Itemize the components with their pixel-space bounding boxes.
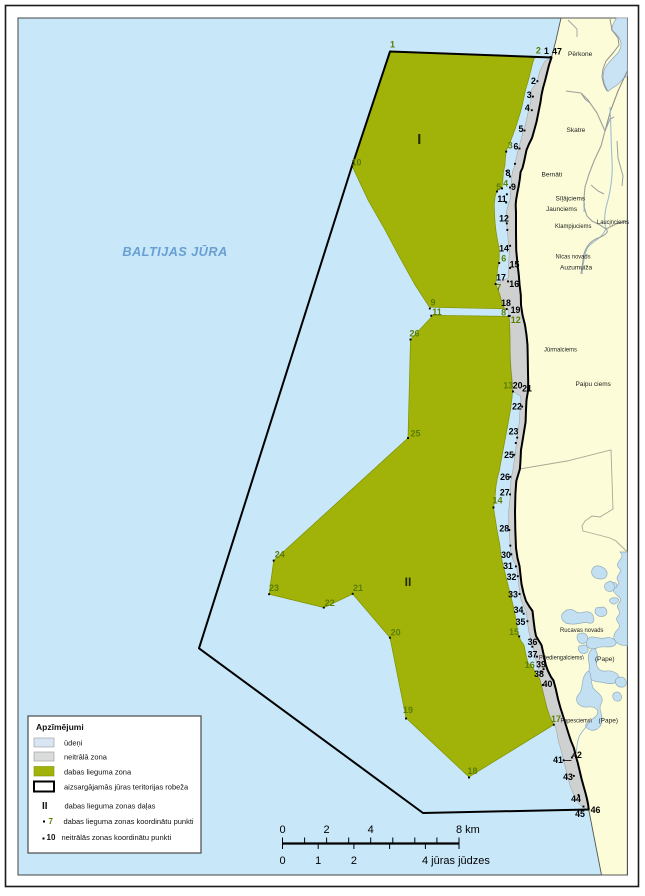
svg-text:2: 2 [324, 824, 330, 836]
svg-text:3: 3 [527, 90, 532, 100]
svg-text:0: 0 [279, 855, 285, 867]
svg-text:11: 11 [497, 194, 506, 204]
svg-text:Skatre: Skatre [567, 127, 586, 134]
svg-text:10: 10 [351, 158, 361, 168]
svg-text:5: 5 [519, 124, 524, 134]
svg-text:11: 11 [432, 307, 442, 317]
svg-text:38: 38 [534, 669, 544, 679]
svg-text:36: 36 [528, 637, 538, 647]
svg-text:25: 25 [410, 429, 420, 439]
svg-text:2: 2 [531, 76, 536, 86]
svg-text:Auzumuiža: Auzumuiža [560, 265, 593, 272]
svg-text:7: 7 [496, 283, 501, 293]
svg-text:25: 25 [504, 450, 514, 460]
svg-text:Priediengalciems\: Priediengalciems\ [539, 655, 584, 662]
svg-text:21: 21 [522, 384, 532, 394]
svg-text:32: 32 [507, 572, 517, 582]
svg-text:18: 18 [501, 298, 511, 308]
svg-text:7: 7 [49, 817, 54, 826]
svg-text:43: 43 [563, 772, 573, 782]
svg-text:18: 18 [467, 766, 477, 776]
svg-text:(Pape): (Pape) [595, 656, 615, 663]
svg-text:Klampjuciems: Klampjuciems [555, 223, 592, 230]
svg-text:19: 19 [511, 305, 521, 315]
svg-text:31: 31 [503, 561, 513, 571]
svg-text:16: 16 [509, 279, 519, 289]
svg-text:24: 24 [275, 549, 285, 559]
svg-text:1: 1 [544, 46, 549, 56]
svg-text:I: I [417, 132, 421, 148]
svg-text:28: 28 [499, 524, 509, 534]
svg-text:13: 13 [503, 381, 513, 391]
svg-text:14: 14 [492, 496, 502, 506]
svg-text:17: 17 [496, 273, 506, 283]
svg-text:dabas lieguma zonas daļas: dabas lieguma zonas daļas [65, 802, 156, 811]
svg-text:neitrālās zonas koordinātu pun: neitrālās zonas koordinātu punkti [62, 833, 172, 842]
svg-text:44: 44 [571, 794, 581, 804]
svg-text:9: 9 [511, 182, 516, 192]
svg-text:26: 26 [500, 472, 510, 482]
svg-text:10: 10 [47, 833, 56, 842]
svg-text:dabas lieguma zonas koordinātu: dabas lieguma zonas koordinātu punkti [64, 817, 194, 826]
svg-text:45: 45 [575, 809, 585, 819]
svg-text:20: 20 [391, 628, 401, 638]
svg-text:Paipu ciems: Paipu ciems [576, 381, 612, 388]
svg-text:Jūrmalciems: Jūrmalciems [544, 347, 578, 354]
svg-text:22: 22 [325, 598, 335, 608]
svg-text:22: 22 [512, 402, 522, 412]
svg-text:Laucįņciems: Laucįņciems [597, 219, 630, 226]
svg-text:(Pape): (Pape) [599, 718, 619, 725]
svg-text:8 km: 8 km [456, 824, 480, 836]
svg-text:aizsargājamās jūras teritorija: aizsargājamās jūras teritorijas robeža [64, 783, 189, 792]
svg-text:ūdeņi: ūdeņi [64, 739, 83, 748]
svg-text:9: 9 [430, 298, 435, 308]
svg-text:12: 12 [499, 214, 509, 224]
svg-text:Bernāti: Bernāti [542, 172, 563, 179]
svg-text:15: 15 [510, 260, 520, 270]
svg-text:2: 2 [536, 46, 541, 56]
svg-text:Papesciems\: Papesciems\ [561, 718, 593, 725]
svg-text:dabas lieguma zona: dabas lieguma zona [64, 768, 132, 777]
svg-text:46: 46 [591, 805, 601, 815]
svg-text:17: 17 [551, 714, 561, 724]
svg-text:Apzīmējumi: Apzīmējumi [36, 722, 84, 732]
svg-text:1: 1 [390, 40, 395, 50]
svg-text:30: 30 [501, 550, 511, 560]
svg-text:0: 0 [279, 824, 285, 836]
svg-text:16: 16 [525, 660, 535, 670]
svg-text:Sīļājciems: Sīļājciems [556, 196, 586, 203]
svg-text:4: 4 [368, 824, 374, 836]
svg-text:40: 40 [543, 679, 553, 689]
svg-text:II: II [405, 575, 412, 589]
svg-text:35: 35 [516, 617, 526, 627]
svg-text:4: 4 [503, 179, 508, 189]
svg-text:6: 6 [501, 254, 506, 264]
svg-text:Rucavas novads: Rucavas novads [560, 627, 604, 634]
svg-text:33: 33 [508, 590, 518, 600]
svg-text:6: 6 [514, 142, 519, 152]
svg-text:Jaunciems: Jaunciems [546, 206, 578, 213]
svg-text:23: 23 [269, 583, 279, 593]
svg-text:12: 12 [511, 315, 521, 325]
svg-text:5: 5 [496, 182, 501, 192]
svg-text:II: II [42, 801, 48, 812]
svg-text:neitrālā zona: neitrālā zona [64, 753, 108, 762]
svg-text:4 jūras jūdzes: 4 jūras jūdzes [422, 855, 490, 867]
svg-text:34: 34 [514, 605, 524, 615]
svg-text:47: 47 [552, 47, 562, 57]
svg-text:14: 14 [499, 244, 509, 254]
svg-text:3: 3 [508, 141, 513, 151]
svg-text:37: 37 [528, 650, 538, 660]
svg-text:23: 23 [509, 427, 519, 437]
svg-text:4: 4 [525, 103, 530, 113]
svg-text:19: 19 [403, 705, 413, 715]
svg-text:1: 1 [315, 855, 321, 867]
svg-text:26: 26 [409, 329, 419, 339]
svg-text:Nīcas novads: Nīcas novads [556, 254, 592, 261]
svg-text:Pērkone: Pērkone [568, 51, 593, 58]
svg-text:8: 8 [501, 308, 506, 318]
svg-text:8: 8 [506, 168, 511, 178]
svg-text:2: 2 [351, 855, 357, 867]
svg-text:41: 41 [553, 755, 563, 765]
svg-text:15: 15 [509, 627, 519, 637]
svg-text:BALTIJAS JŪRA: BALTIJAS JŪRA [122, 244, 227, 259]
svg-text:21: 21 [353, 583, 363, 593]
svg-text:42: 42 [572, 750, 582, 760]
